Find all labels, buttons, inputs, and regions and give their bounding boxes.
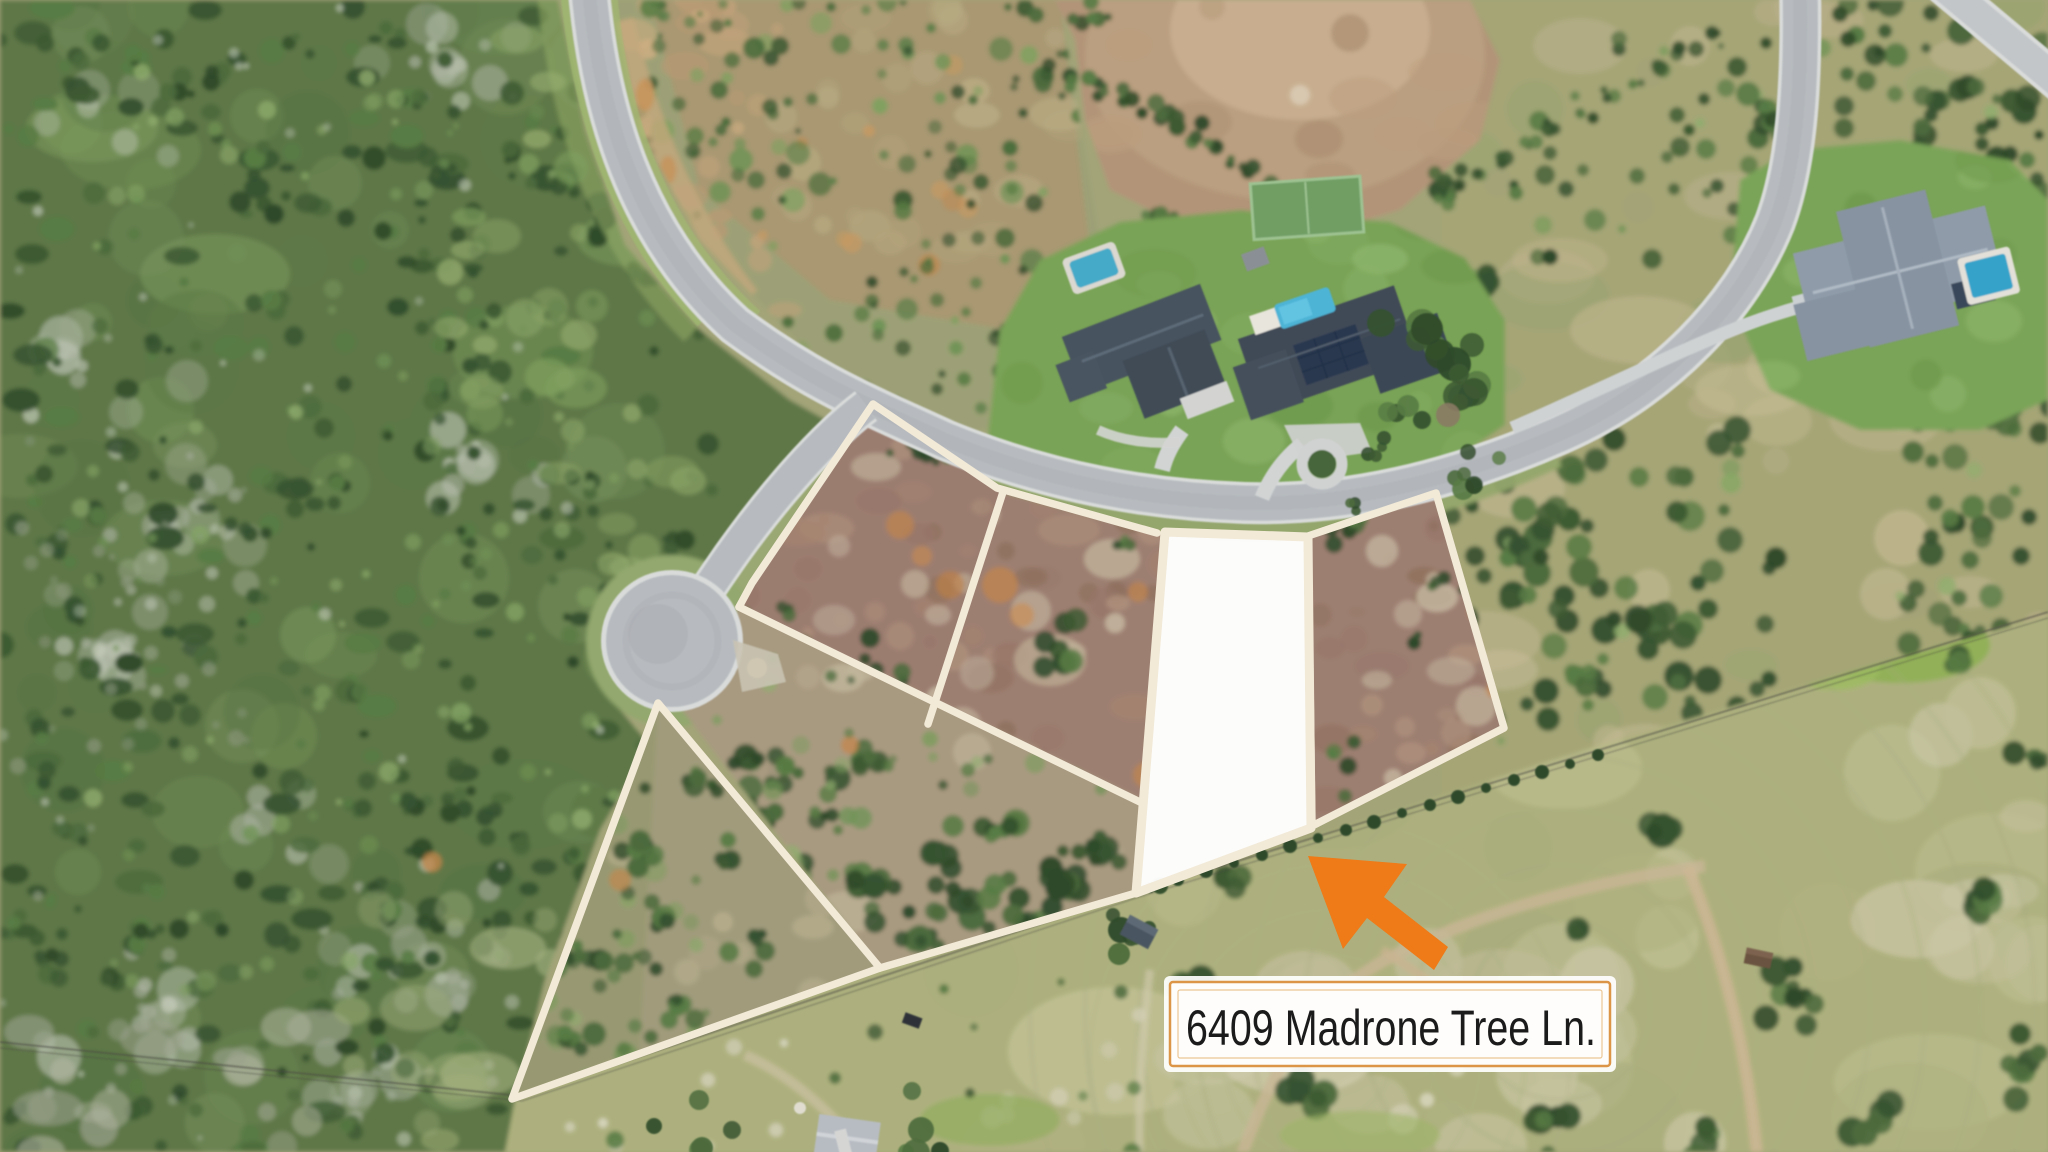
svg-text:6409 Madrone Tree Ln.: 6409 Madrone Tree Ln.: [1186, 1000, 1596, 1056]
